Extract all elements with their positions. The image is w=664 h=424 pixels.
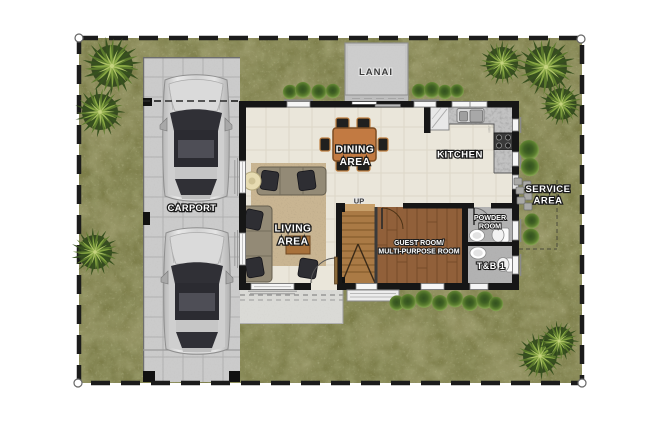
- svg-text:KITCHEN: KITCHEN: [437, 150, 483, 161]
- svg-text:MULTI-PURPOSE ROOM: MULTI-PURPOSE ROOM: [378, 249, 459, 256]
- svg-text:AREA: AREA: [278, 237, 309, 248]
- svg-text:GUEST ROOM/: GUEST ROOM/: [394, 240, 444, 247]
- svg-text:T&B 1: T&B 1: [477, 261, 506, 271]
- svg-text:AREA: AREA: [534, 196, 563, 207]
- svg-text:ROOM: ROOM: [479, 222, 501, 231]
- svg-text:DINING: DINING: [336, 145, 375, 156]
- svg-text:CARPORT: CARPORT: [168, 203, 217, 213]
- svg-text:AREA: AREA: [340, 157, 371, 168]
- svg-text:LANAI: LANAI: [359, 67, 393, 78]
- svg-text:LIVING: LIVING: [275, 224, 312, 235]
- svg-text:SERVICE: SERVICE: [525, 184, 570, 195]
